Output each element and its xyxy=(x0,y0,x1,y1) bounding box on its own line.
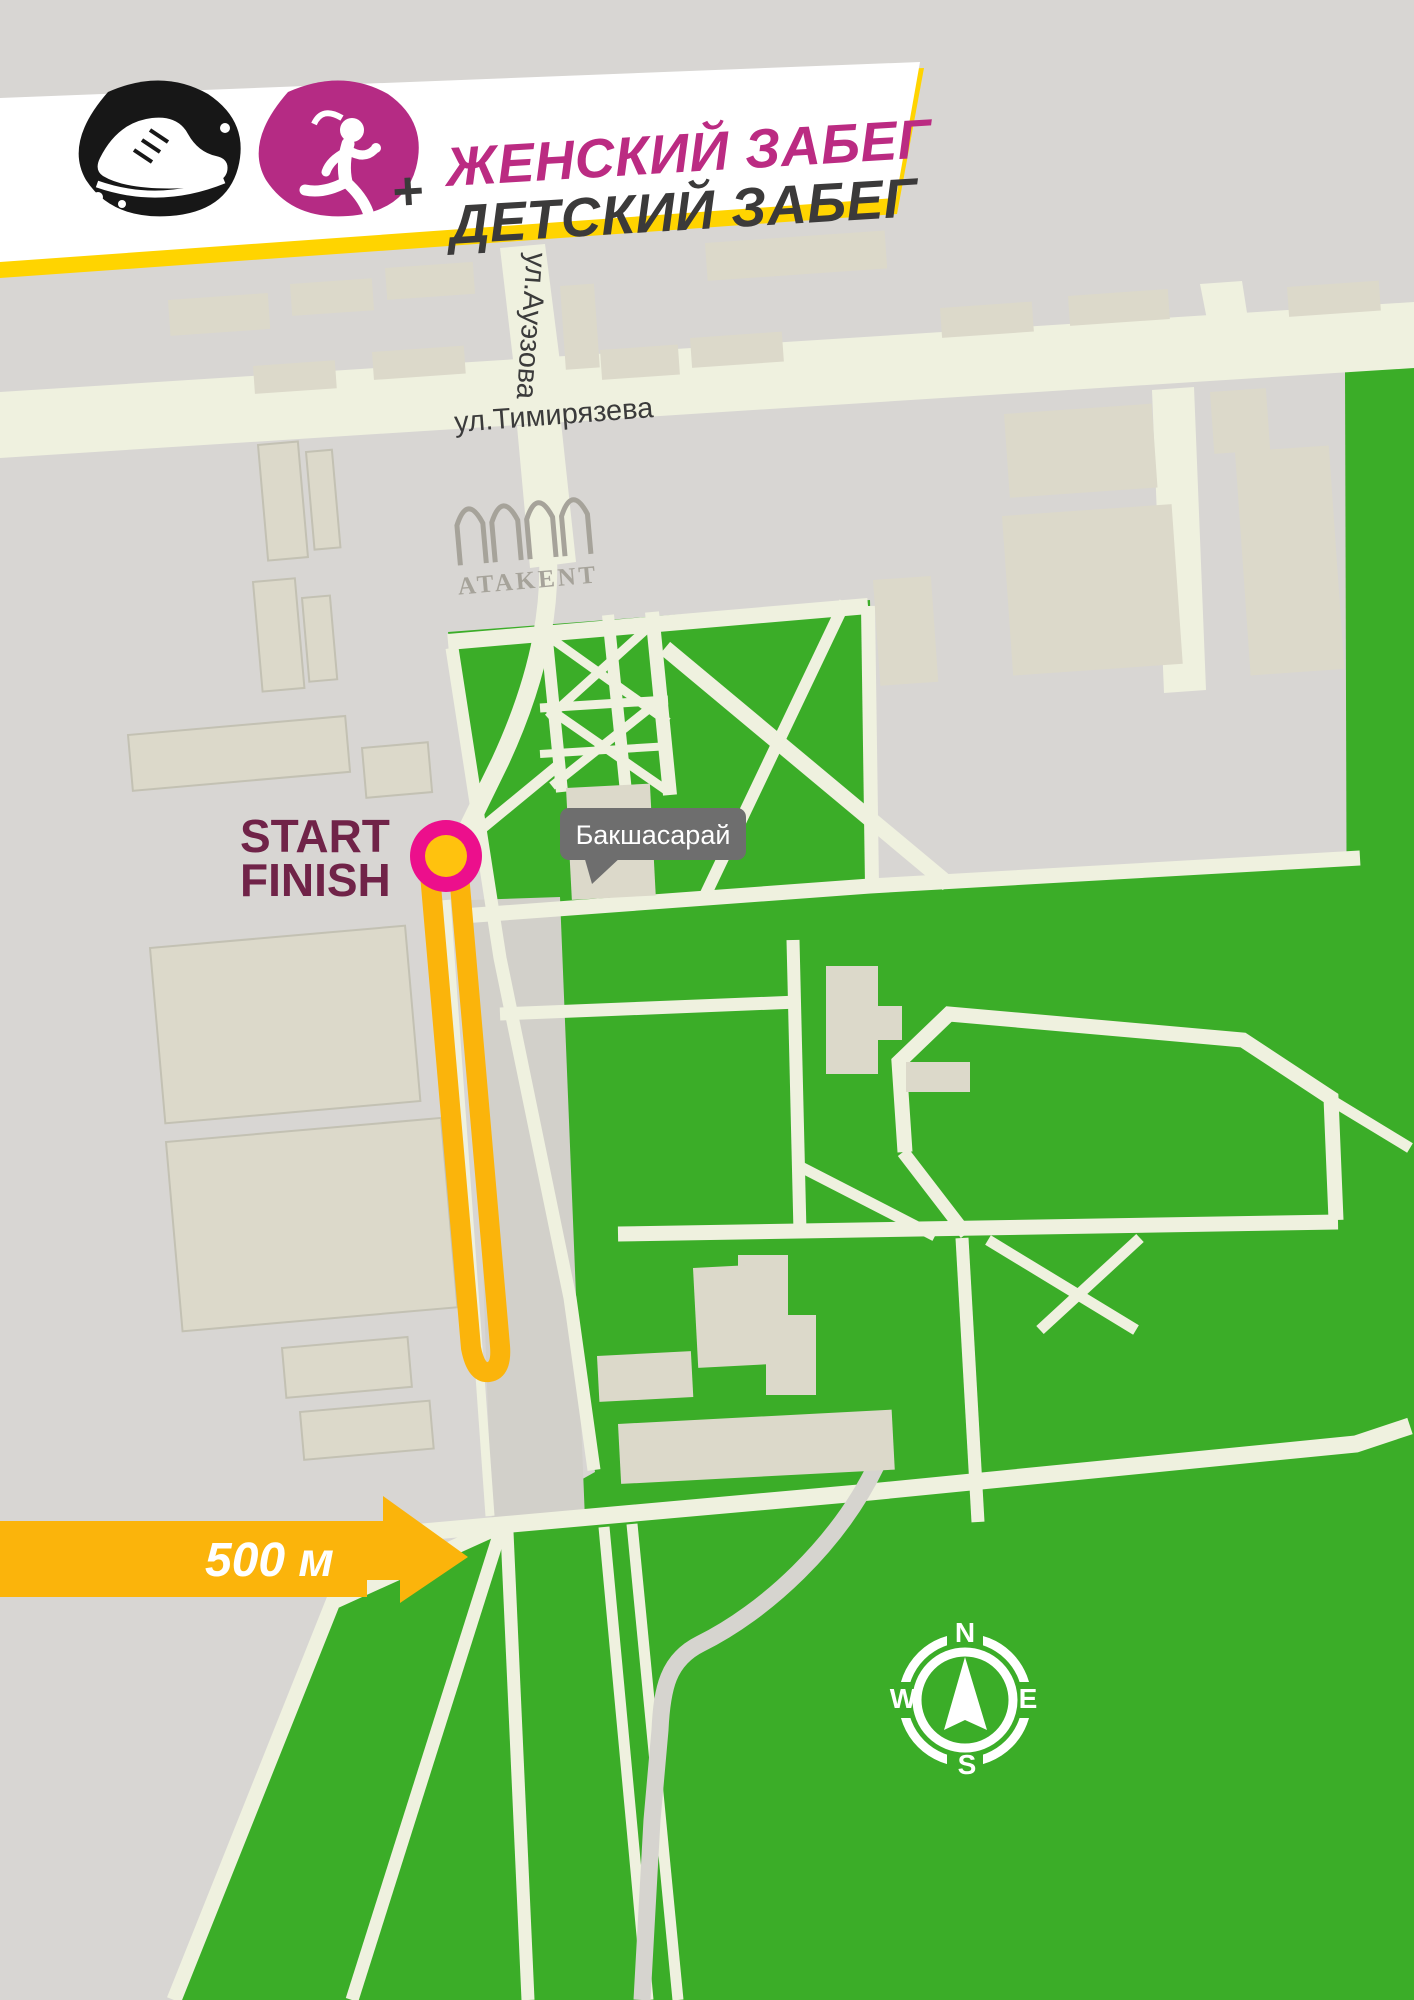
runner-fist xyxy=(371,143,381,153)
building xyxy=(873,576,938,686)
badge-dot xyxy=(118,200,126,208)
building xyxy=(290,278,374,316)
building xyxy=(597,1351,693,1402)
building xyxy=(560,284,600,370)
shoe-badge-icon xyxy=(79,80,241,216)
building xyxy=(253,578,304,691)
compass-south-label: S xyxy=(958,1749,977,1780)
map-canvas: ул.Тимирязева ул.Ауэзова ATAKENT START F… xyxy=(0,0,1414,2000)
building xyxy=(362,742,432,798)
building xyxy=(168,293,270,336)
park-path xyxy=(868,606,872,886)
building xyxy=(690,332,784,368)
poi-label: Бакшасарай xyxy=(576,820,731,850)
runner-head xyxy=(340,118,364,142)
building xyxy=(1210,388,1270,454)
building xyxy=(600,345,680,380)
building xyxy=(150,926,420,1124)
badge-dot xyxy=(220,123,230,133)
building xyxy=(166,1118,458,1331)
compass-north-label: N xyxy=(955,1617,975,1648)
finish-label: FINISH xyxy=(240,854,391,906)
building xyxy=(1235,445,1344,675)
building xyxy=(385,262,475,300)
runner-arm-front xyxy=(348,150,374,155)
building xyxy=(1002,504,1183,675)
building xyxy=(302,596,337,682)
plus-sign: + xyxy=(391,160,426,222)
compass-west-label: W xyxy=(890,1683,917,1714)
building xyxy=(1004,404,1157,498)
building xyxy=(300,1401,434,1460)
building xyxy=(940,302,1034,338)
race-map-poster: ул.Тимирязева ул.Ауэзова ATAKENT START F… xyxy=(0,0,1414,2000)
park-path xyxy=(793,940,800,1232)
start-finish-marker-center xyxy=(425,835,467,877)
building xyxy=(693,1264,780,1368)
building xyxy=(282,1337,412,1398)
compass-east-label: E xyxy=(1019,1683,1038,1714)
distance-label: 500 м xyxy=(205,1534,334,1587)
building xyxy=(1287,281,1381,317)
badge-dot xyxy=(93,192,103,202)
building xyxy=(253,360,337,394)
building xyxy=(906,1062,970,1092)
